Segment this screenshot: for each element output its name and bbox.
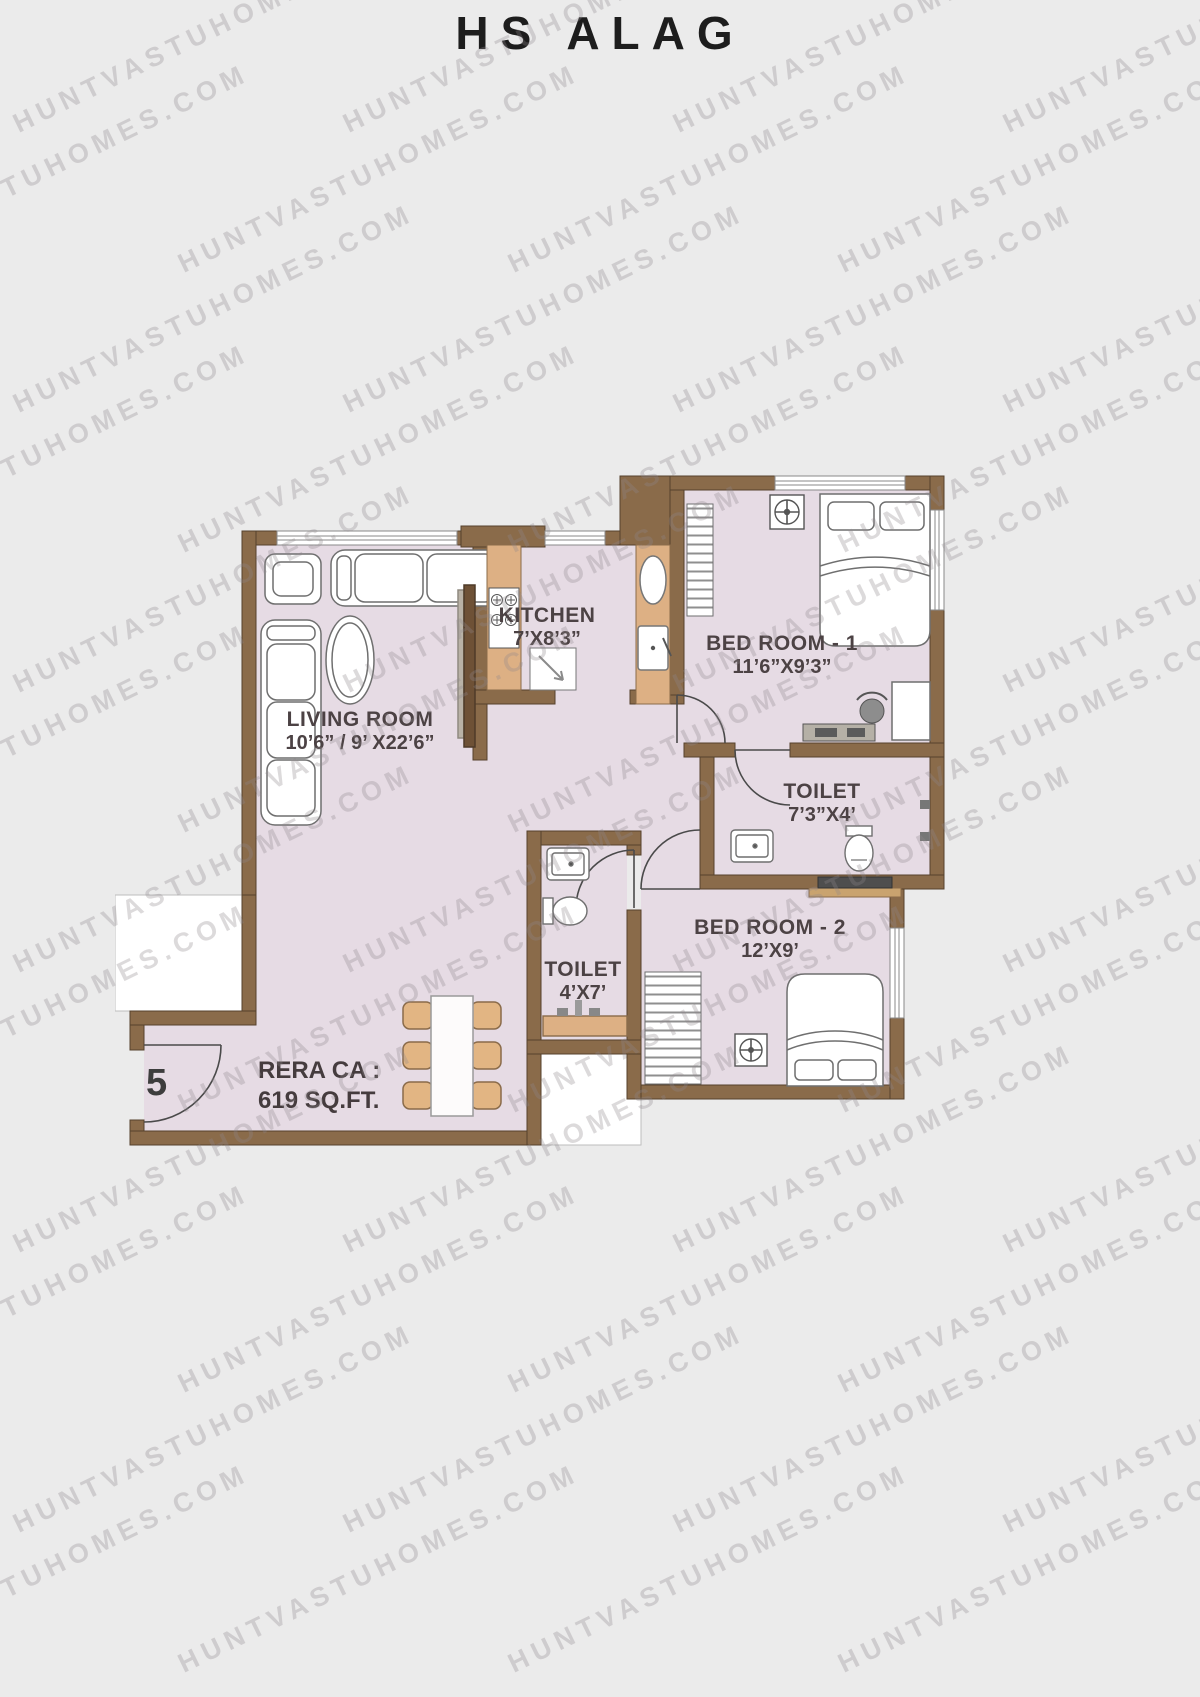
- watermark-text: HUNTVASTUHOMES.COM: [998, 758, 1200, 980]
- watermark-text: HUNTVASTUHOMES.COM: [998, 1038, 1200, 1260]
- dining-table: [431, 996, 473, 1116]
- watermark-text: HUNTVASTUHOMES.COM: [503, 1178, 914, 1400]
- bedroom1-dims: 11’6”X9’3”: [706, 656, 858, 679]
- watermark-text: HUNTVASTUHOMES.COM: [0, 1458, 254, 1680]
- tap-icon: [920, 832, 930, 841]
- watermark-text: HUNTVASTUHOMES.COM: [998, 198, 1200, 420]
- exterior-notch-bottom: [541, 1054, 641, 1145]
- window-bedroom1-right: [930, 510, 944, 610]
- window-kitchen-top: [545, 531, 605, 545]
- tv-bedroom2: [809, 877, 901, 897]
- wc-toilet2: [543, 897, 587, 925]
- coffee-table: [326, 616, 374, 704]
- living-room-label: LIVING ROOM 10’6” / 9’ X22’6”: [286, 708, 435, 755]
- window-bedroom1-top: [775, 476, 905, 490]
- living-room-name: LIVING ROOM: [286, 708, 435, 732]
- exterior-notch-left: [115, 895, 242, 1011]
- watermark-text: HUNTVASTUHOMES.COM: [833, 58, 1200, 280]
- toilet2-name: TOILET: [544, 958, 621, 982]
- watermark-text: HUNTVASTUHOMES.COM: [0, 58, 254, 280]
- tap-icon: [920, 800, 930, 809]
- watermark-text: HUNTVASTUHOMES.COM: [668, 198, 1079, 420]
- ceiling-fan-bedroom2: [735, 1034, 767, 1066]
- watermark-text: HUNTVASTUHOMES.COM: [833, 1458, 1200, 1680]
- watermark-text: HUNTVASTUHOMES.COM: [503, 1458, 914, 1680]
- bedroom2-dims: 12’X9’: [694, 940, 846, 963]
- watermark-text: HUNTVASTUHOMES.COM: [503, 58, 914, 280]
- bedroom1-label: BED ROOM - 1 11’6”X9’3”: [706, 632, 858, 679]
- ceiling-fan-bedroom1: [770, 495, 804, 529]
- kitchen-platform: [530, 648, 576, 690]
- rera-area-label: RERA CA : 619 SQ.FT.: [258, 1056, 380, 1116]
- watermark-text: HUNTVASTUHOMES.COM: [8, 198, 419, 420]
- watermark-text: HUNTVASTUHOMES.COM: [338, 1318, 749, 1540]
- kitchen-dims: 7’X8’3”: [499, 628, 596, 651]
- toilet1-dims: 7’3”X4’: [783, 804, 860, 827]
- rera-line1: RERA CA :: [258, 1056, 380, 1086]
- watermark-text: HUNTVASTUHOMES.COM: [173, 58, 584, 280]
- dining-set: [403, 996, 501, 1116]
- window-living-top: [277, 531, 457, 545]
- bedroom2-name: BED ROOM - 2: [694, 916, 846, 940]
- watermark-text: HUNTVASTUHOMES.COM: [668, 1318, 1079, 1540]
- toilet2-label: TOILET 4’X7’: [544, 958, 621, 1005]
- round-sink: [640, 556, 666, 604]
- wc-toilet1: [845, 826, 873, 871]
- toilet2-dims: 4’X7’: [544, 982, 621, 1005]
- washbasin-toilet1: [731, 830, 773, 862]
- watermark-text: HUNTVASTUHOMES.COM: [0, 1178, 254, 1400]
- watermark-text: HUNTVASTUHOMES.COM: [998, 478, 1200, 700]
- kitchen-sink: [638, 626, 671, 670]
- page-title: HS ALAG: [0, 6, 1200, 60]
- dresser: [803, 724, 875, 741]
- kitchen-label: KITCHEN 7’X8’3”: [499, 604, 596, 651]
- toilet1-label: TOILET 7’3”X4’: [783, 780, 860, 827]
- toilet1-name: TOILET: [783, 780, 860, 804]
- rera-line2: 619 SQ.FT.: [258, 1086, 380, 1116]
- washbasin-toilet2: [547, 848, 589, 880]
- wardrobe-bedroom2: [645, 972, 701, 1084]
- double-bed-bedroom1: [820, 494, 930, 646]
- living-room-dims: 10’6” / 9’ X22’6”: [286, 732, 435, 755]
- bedroom2-label: BED ROOM - 2 12’X9’: [694, 916, 846, 963]
- tv-unit: [458, 585, 475, 747]
- unit-number: 5: [146, 1062, 167, 1105]
- watermark-text: HUNTVASTUHOMES.COM: [173, 1178, 584, 1400]
- double-bed-bedroom2: [787, 974, 883, 1086]
- window-bedroom2-right: [890, 928, 904, 1018]
- watermark-text: HUNTVASTUHOMES.COM: [998, 1318, 1200, 1540]
- column-block: [461, 526, 545, 547]
- kitchen-name: KITCHEN: [499, 604, 596, 628]
- watermark-text: HUNTVASTUHOMES.COM: [173, 1458, 584, 1680]
- wardrobe-bedroom1: [687, 504, 713, 616]
- bedroom1-name: BED ROOM - 1: [706, 632, 858, 656]
- watermark-text: HUNTVASTUHOMES.COM: [8, 1318, 419, 1540]
- watermark-text: HUNTVASTUHOMES.COM: [338, 198, 749, 420]
- watermark-text: HUNTVASTUHOMES.COM: [833, 1178, 1200, 1400]
